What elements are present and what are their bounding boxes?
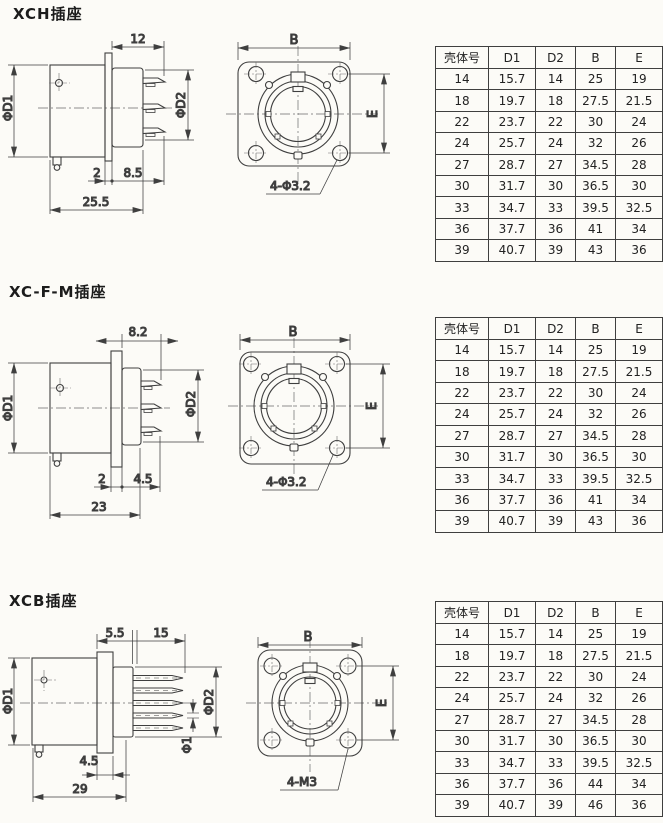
table-row: 3940.7394636: [436, 795, 663, 816]
table-cell: 19.7: [489, 90, 536, 111]
dim-label-b: 4.5: [133, 472, 152, 486]
spec-table-xcb: 壳体号D1D2BE1415.71425191819.71827.521.5222…: [435, 601, 663, 817]
table-row: 2425.7243226: [436, 133, 663, 154]
table-cell: 26: [616, 688, 663, 709]
table-cell: 27: [436, 425, 489, 446]
table-cell: 14: [436, 624, 489, 645]
table-cell: 39: [436, 240, 489, 261]
ear-lug: [266, 82, 273, 89]
dim-label-E: E: [365, 402, 380, 410]
dimensions: [240, 334, 390, 490]
table-row: 1415.7142519: [436, 340, 663, 361]
bottom-tab: [306, 739, 314, 746]
mount-pin: [53, 453, 61, 461]
table-cell: 24: [536, 133, 576, 154]
holes-label: 4-Φ3.2: [270, 179, 311, 193]
table-header-cell: D2: [536, 602, 576, 624]
table-cell: 19: [616, 69, 663, 90]
table-cell: 32: [576, 133, 616, 154]
table-cell: 30: [576, 111, 616, 132]
table-row: 3637.7364134: [436, 218, 663, 239]
table-cell: 41: [576, 218, 616, 239]
table-row: 1415.7142519: [436, 69, 663, 90]
table-cell: 32: [576, 404, 616, 425]
table-cell: 32: [576, 688, 616, 709]
table-cell: 37.7: [489, 489, 536, 510]
dim-label-top: 12: [130, 32, 145, 46]
table-cell: 34: [616, 489, 663, 510]
dim-label-B: B: [290, 33, 299, 48]
table-cell: 27: [436, 709, 489, 730]
bottom-tab: [294, 152, 302, 159]
ear-lug: [320, 374, 327, 381]
table-cell: 25.7: [489, 404, 536, 425]
xch-side-view: 12 ΦD1 ΦD2 2 8.5 25.5: [1, 32, 194, 214]
table-cell: 24: [436, 133, 489, 154]
table-cell: 28.7: [489, 709, 536, 730]
table-cell: 15.7: [489, 69, 536, 90]
table-cell: 21.5: [616, 90, 663, 111]
table-row: 1415.7142519: [436, 624, 663, 645]
table-cell: 32.5: [616, 752, 663, 773]
table-cell: 36: [536, 218, 576, 239]
table-cell: 22: [436, 382, 489, 403]
table-cell: 30: [436, 175, 489, 196]
table-row: 2728.72734.528: [436, 709, 663, 730]
table-cell: 34.7: [489, 197, 536, 218]
table-header-cell: E: [616, 318, 663, 340]
table-row: 2223.7223024: [436, 666, 663, 687]
table-cell: 28.7: [489, 154, 536, 175]
table-cell: 28: [616, 154, 663, 175]
table-cell: 36: [436, 218, 489, 239]
table-header-cell: E: [616, 602, 663, 624]
table-cell: 46: [576, 795, 616, 816]
table-cell: 40.7: [489, 795, 536, 816]
table-cell: 34.5: [576, 709, 616, 730]
table-cell: 24: [536, 404, 576, 425]
table-cell: 14: [536, 624, 576, 645]
table-cell: 27: [536, 425, 576, 446]
table-cell: 23.7: [489, 382, 536, 403]
dim-label-top-a: 5.5: [105, 626, 124, 640]
barrel: [113, 667, 133, 737]
table-cell: 31.7: [489, 175, 536, 196]
catalog-page: XCH插座 XC-F-M插座 XCB插座: [0, 0, 663, 823]
dim-label-a: 2: [93, 166, 101, 180]
table-cell: 22: [536, 111, 576, 132]
table-header-cell: 壳体号: [436, 318, 489, 340]
ear-lug: [262, 374, 269, 381]
table-header-cell: B: [576, 47, 616, 69]
table-cell: 39.5: [576, 752, 616, 773]
table-cell: 19.7: [489, 645, 536, 666]
table-cell: 24: [536, 688, 576, 709]
dim-label-B: B: [304, 630, 313, 645]
table-cell: 34.7: [489, 468, 536, 489]
table-row: 3031.73036.530: [436, 175, 663, 196]
table-cell: 25: [576, 69, 616, 90]
table-cell: 15.7: [489, 340, 536, 361]
key-tab: [303, 663, 317, 672]
table-row: 1819.71827.521.5: [436, 90, 663, 111]
table-cell: 22: [436, 666, 489, 687]
table-header-cell: D2: [536, 47, 576, 69]
table-cell: 34: [616, 218, 663, 239]
table-cell: 25: [576, 624, 616, 645]
table-cell: 28: [616, 425, 663, 446]
table-cell: 14: [436, 340, 489, 361]
table-cell: 33: [436, 752, 489, 773]
table-cell: 18: [536, 361, 576, 382]
table-cell: 22: [436, 111, 489, 132]
dimensions: [8, 41, 194, 214]
table-cell: 19: [616, 624, 663, 645]
table-cell: 43: [576, 511, 616, 532]
table-cell: 15.7: [489, 624, 536, 645]
dim-label-b: 8.5: [123, 166, 142, 180]
xcb-table-container: 壳体号D1D2BE1415.71425191819.71827.521.5222…: [435, 601, 663, 817]
table-cell: 25.7: [489, 688, 536, 709]
table-cell: 40.7: [489, 240, 536, 261]
table-cell: 30: [436, 730, 489, 751]
table-cell: 36: [616, 511, 663, 532]
table-cell: 33: [436, 197, 489, 218]
xcfm-table-container: 壳体号D1D2BE1415.71425191819.71827.521.5222…: [435, 317, 663, 533]
table-row: 2425.7243226: [436, 404, 663, 425]
table-row: 1819.71827.521.5: [436, 645, 663, 666]
bottom-tab: [290, 444, 298, 451]
contact-pins: [143, 78, 165, 137]
table-cell: 39: [436, 511, 489, 532]
table-cell: 37.7: [489, 773, 536, 794]
table-cell: 26: [616, 404, 663, 425]
table-cell: 25: [576, 340, 616, 361]
table-header-cell: B: [576, 602, 616, 624]
table-row: 2425.7243226: [436, 688, 663, 709]
dim-label-top-b: 15: [153, 626, 168, 640]
table-cell: 30: [536, 730, 576, 751]
body: [50, 65, 105, 157]
table-cell: 41: [576, 489, 616, 510]
flange: [97, 652, 113, 753]
table-row: 3031.73036.530: [436, 446, 663, 467]
dim-label-E: E: [366, 110, 381, 118]
table-cell: 36.5: [576, 446, 616, 467]
table-cell: 30: [536, 175, 576, 196]
table-header-cell: D2: [536, 318, 576, 340]
table-cell: 30: [576, 666, 616, 687]
table-cell: 24: [616, 666, 663, 687]
table-cell: 27.5: [576, 361, 616, 382]
ear-lug: [280, 673, 287, 680]
ear-lug: [334, 673, 341, 680]
table-header-row: 壳体号D1D2BE: [436, 47, 663, 69]
dim-label-total: 25.5: [83, 195, 110, 209]
table-cell: 19: [616, 340, 663, 361]
table-cell: 30: [536, 446, 576, 467]
table-header-cell: 壳体号: [436, 602, 489, 624]
table-header-cell: B: [576, 318, 616, 340]
table-cell: 21.5: [616, 645, 663, 666]
dim-label-a: 2: [98, 472, 106, 486]
table-cell: 22: [536, 666, 576, 687]
xcb-side-view: 5.5 15 ΦD1 ΦD2 Φ1 4.5 29: [1, 626, 222, 802]
table-cell: 36: [536, 489, 576, 510]
table-row: 3940.7394336: [436, 511, 663, 532]
table-cell: 30: [436, 446, 489, 467]
table-cell: 28.7: [489, 425, 536, 446]
table-cell: 37.7: [489, 218, 536, 239]
xch-front-view: B E 4-Φ3.2: [226, 33, 390, 194]
dimensions: [258, 637, 399, 790]
table-cell: 31.7: [489, 730, 536, 751]
table-cell: 44: [576, 773, 616, 794]
table-cell: 23.7: [489, 666, 536, 687]
table-cell: 34.7: [489, 752, 536, 773]
table-cell: 18: [536, 645, 576, 666]
xch-table-container: 壳体号D1D2BE1415.71425191819.71827.521.5222…: [435, 46, 663, 262]
contact-pins: [133, 676, 183, 731]
table-row: 1819.71827.521.5: [436, 361, 663, 382]
spec-table-xcfm: 壳体号D1D2BE1415.71425191819.71827.521.5222…: [435, 317, 663, 533]
table-row: 3637.7364434: [436, 773, 663, 794]
table-cell: 30: [616, 730, 663, 751]
holes-label: 4-Φ3.2: [266, 475, 307, 489]
table-header-cell: D1: [489, 602, 536, 624]
contact-pins: [141, 381, 161, 436]
table-cell: 25.7: [489, 133, 536, 154]
table-cell: 32.5: [616, 468, 663, 489]
table-cell: 19.7: [489, 361, 536, 382]
key-tab: [291, 72, 305, 82]
table-cell: 36.5: [576, 175, 616, 196]
table-cell: 24: [616, 382, 663, 403]
table-row: 3334.73339.532.5: [436, 197, 663, 218]
table-cell: 31.7: [489, 446, 536, 467]
table-cell: 30: [576, 382, 616, 403]
xcfm-front-view: B E 4-Φ3.2: [228, 325, 390, 490]
table-row: 2223.7223024: [436, 382, 663, 403]
table-cell: 27.5: [576, 645, 616, 666]
table-cell: 27: [536, 154, 576, 175]
table-cell: 36: [436, 489, 489, 510]
table-cell: 14: [436, 69, 489, 90]
table-cell: 34.5: [576, 154, 616, 175]
table-header-row: 壳体号D1D2BE: [436, 318, 663, 340]
dim-label-d2: ΦD2: [184, 391, 198, 417]
table-row: 3637.7364134: [436, 489, 663, 510]
table-cell: 36: [536, 773, 576, 794]
table-row: 3334.73339.532.5: [436, 468, 663, 489]
table-cell: 27: [536, 709, 576, 730]
holes-label: 4-M3: [287, 775, 317, 789]
dim-label-E: E: [375, 699, 390, 707]
dim-label-d2: ΦD2: [174, 92, 188, 118]
table-cell: 14: [536, 340, 576, 361]
table-cell: 18: [536, 90, 576, 111]
table-cell: 34: [616, 773, 663, 794]
mount-pin: [53, 157, 61, 165]
table-cell: 36: [436, 773, 489, 794]
table-cell: 36: [616, 240, 663, 261]
table-cell: 30: [616, 175, 663, 196]
dim-label-d1: ΦD1: [1, 688, 15, 714]
table-header-cell: D1: [489, 47, 536, 69]
table-cell: 36.5: [576, 730, 616, 751]
dim-label-B: B: [289, 325, 298, 340]
table-header-cell: 壳体号: [436, 47, 489, 69]
table-row: 2728.72734.528: [436, 425, 663, 446]
dim-label-d1: ΦD1: [1, 395, 15, 421]
table-cell: 18: [436, 361, 489, 382]
table-cell: 39: [436, 795, 489, 816]
table-row: 3334.73339.532.5: [436, 752, 663, 773]
xcb-front-view: B E 4-M3: [246, 630, 399, 790]
table-cell: 24: [436, 688, 489, 709]
dim-label-pin: Φ1: [180, 736, 194, 753]
mount-pin: [35, 745, 43, 752]
table-cell: 22: [536, 382, 576, 403]
barrel: [112, 68, 143, 147]
dim-label-top: 8.2: [128, 325, 147, 339]
table-cell: 26: [616, 133, 663, 154]
dim-label-d2: ΦD2: [202, 689, 216, 715]
table-cell: 36: [616, 795, 663, 816]
table-cell: 33: [436, 468, 489, 489]
dim-label-d1: ΦD1: [1, 95, 15, 121]
table-cell: 21.5: [616, 361, 663, 382]
table-row: 3031.73036.530: [436, 730, 663, 751]
table-cell: 32.5: [616, 197, 663, 218]
table-row: 2223.7223024: [436, 111, 663, 132]
table-cell: 33: [536, 197, 576, 218]
table-cell: 30: [616, 446, 663, 467]
table-cell: 34.5: [576, 425, 616, 446]
body: [32, 658, 97, 745]
table-cell: 14: [536, 69, 576, 90]
dimensions: [8, 334, 204, 519]
dim-label-total: 29: [72, 782, 87, 796]
table-cell: 43: [576, 240, 616, 261]
table-row: 3940.7394336: [436, 240, 663, 261]
table-cell: 39: [536, 795, 576, 816]
dim-label-total: 23: [91, 500, 106, 514]
table-header-row: 壳体号D1D2BE: [436, 602, 663, 624]
table-cell: 23.7: [489, 111, 536, 132]
table-cell: 39.5: [576, 197, 616, 218]
dimensions: [8, 630, 222, 802]
table-row: 2728.72734.528: [436, 154, 663, 175]
table-cell: 18: [436, 90, 489, 111]
ear-lug: [324, 82, 331, 89]
flange: [111, 351, 122, 467]
table-cell: 27: [436, 154, 489, 175]
spec-table-xch: 壳体号D1D2BE1415.71425191819.71827.521.5222…: [435, 46, 663, 262]
table-cell: 33: [536, 468, 576, 489]
table-cell: 39: [536, 240, 576, 261]
table-cell: 18: [436, 645, 489, 666]
table-header-cell: E: [616, 47, 663, 69]
table-cell: 39.5: [576, 468, 616, 489]
xcfm-side-view: 8.2 ΦD1 ΦD2 2 4.5 23: [1, 325, 204, 519]
table-cell: 40.7: [489, 511, 536, 532]
table-cell: 28: [616, 709, 663, 730]
barrel: [122, 368, 141, 445]
table-cell: 33: [536, 752, 576, 773]
table-cell: 24: [436, 404, 489, 425]
key-tab: [287, 364, 301, 374]
table-cell: 27.5: [576, 90, 616, 111]
table-cell: 24: [616, 111, 663, 132]
dim-label-a: 4.5: [79, 754, 98, 768]
table-header-cell: D1: [489, 318, 536, 340]
table-cell: 39: [536, 511, 576, 532]
flange: [105, 53, 112, 161]
